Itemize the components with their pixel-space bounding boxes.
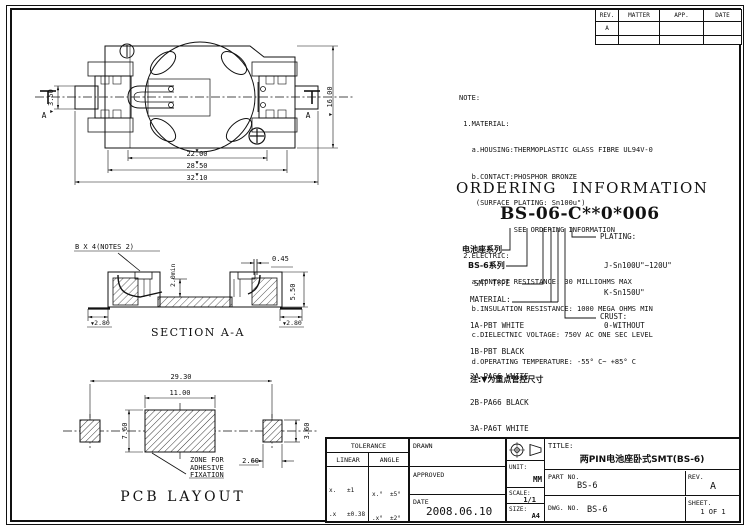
approved-cell: APPROVED xyxy=(410,468,507,495)
note-line: NOTE: xyxy=(459,94,653,103)
material-option: 1A-PBT WHITE xyxy=(470,322,529,330)
adhesive-zone xyxy=(145,410,215,452)
title-cell: TITLE: 两PIN电池座卧式SMT(BS-6) xyxy=(545,439,739,470)
key-mark: ▼ xyxy=(328,113,334,116)
tolerance-table: TOLERANCE LINEAR x. ±1 .x ±0.38 .xx ±0.2… xyxy=(327,439,410,521)
zone-label-line1: ZONE FOR xyxy=(190,456,225,464)
drawn-cell: DRAWN xyxy=(410,439,507,467)
part-no-label: PART NO. xyxy=(548,473,579,481)
rev-header-rev: REV. xyxy=(596,9,619,22)
drawing-title: 两PIN电池座卧式SMT(BS-6) xyxy=(545,452,739,465)
linear-row: x. ±1 xyxy=(329,487,365,495)
linear-row: .x ±0.38 xyxy=(329,511,365,519)
dim-mid-width: 28.50 xyxy=(186,162,207,170)
dwg-no-value: BS-6 xyxy=(587,505,607,515)
ordering-crust-label: CRUST: xyxy=(600,312,627,321)
dim-pad-width: 2.60 xyxy=(242,457,259,465)
rev-cell-empty xyxy=(660,36,704,45)
angle-row: .x° ±2° xyxy=(372,515,408,523)
rev-cell-rev: A xyxy=(596,22,619,36)
date-cell: DATE 2008.06.10 xyxy=(410,496,507,521)
dim-foot-left: 2.80 xyxy=(94,319,110,327)
section-letter-left: A xyxy=(42,111,47,120)
unit-cell: UNIT: MM xyxy=(507,462,545,488)
angle-row: x.° ±5° xyxy=(372,491,408,499)
rev-label: REV. xyxy=(688,473,704,481)
scale-value: 1/1 xyxy=(523,496,536,504)
rev-header-app: APP. xyxy=(660,9,704,22)
scale-cell: SCALE: 1/1 xyxy=(507,489,545,504)
unit-label: UNIT: xyxy=(509,464,527,471)
rev-cell-date xyxy=(704,22,742,36)
material-option: 2B-PA66 BLACK xyxy=(470,399,529,407)
rev-cell-empty xyxy=(596,36,619,45)
angle-header: ANGLE xyxy=(369,453,410,467)
ordering-material-label: MATERIAL: xyxy=(470,295,511,304)
top-view-drawing: A A ▼ 3.50 ▼ 16.00 ▼ 22.00 ▼ 28.50 ▼ 32.… xyxy=(30,25,365,203)
section-caption: SECTION A-A xyxy=(151,326,245,339)
contact-callout: B X 4(NOTES 2) xyxy=(75,243,134,251)
section-view-drawing: B X 4(NOTES 2) 0.45 5.50 2.0min ▼ 2.80 ▼… xyxy=(60,235,345,350)
ordering-plating-options: J-Sn100U"~120U" K-Sn150U" xyxy=(604,244,672,315)
rev-header-date: DATE xyxy=(704,9,742,22)
angle-values: x.° ±5° .x° ±2° .xx° ±1° xyxy=(372,475,408,530)
key-mark: ▼ xyxy=(49,110,55,113)
dwg-row: DWG. NO. BS-6 SHEET. 1 OF 1 xyxy=(545,497,739,521)
dim-body-height: 16.00 xyxy=(326,86,334,107)
title-block: TOLERANCE LINEAR x. ±1 .x ±0.38 .xx ±0.2… xyxy=(325,437,741,523)
dim-section-height: 5.50 xyxy=(289,284,297,301)
linear-values: x. ±1 .x ±0.38 .xx ±0.25 .xxx ±0.10 xyxy=(329,471,365,530)
format-column: UNIT: MM SCALE: 1/1 SIZE: A4 xyxy=(507,439,545,521)
drawn-label: DRAWN xyxy=(413,442,433,450)
slot-top-right xyxy=(217,47,250,79)
sheet-label: SHEET. xyxy=(688,499,711,507)
size-value: A4 xyxy=(532,512,540,520)
rev-cell-app xyxy=(660,22,704,36)
tolerance-angle-col: ANGLE x.° ±5° .x° ±2° .xx° ±1° xyxy=(369,453,410,521)
note-line: 1.MATERIAL: xyxy=(459,120,653,129)
dim-outer-width: 32.10 xyxy=(186,174,207,182)
dim-tab-width: 3.50 xyxy=(47,89,55,106)
part-no-value: BS-6 xyxy=(577,481,597,491)
rev-cell-empty xyxy=(619,36,660,45)
part-row: PART NO. BS-6 REV. A xyxy=(545,471,739,496)
third-angle-projection-icon xyxy=(508,441,544,459)
plus-polarity-icon xyxy=(249,128,265,144)
material-option: 1B-PBT BLACK xyxy=(470,348,529,356)
approved-label: APPROVED xyxy=(413,471,444,479)
solder-pad-left xyxy=(80,420,100,442)
rev-header-matter: MATTER xyxy=(619,9,660,22)
section-cut-marks xyxy=(40,91,320,104)
ordering-plating-label: PLATING: xyxy=(600,232,636,241)
dim-zone-width: 11.00 xyxy=(169,389,190,397)
revision-table: REV. MATTER APP. DATE A xyxy=(595,9,742,45)
dim-pad-height: 3.60 xyxy=(303,423,311,440)
dim-pcb-overall: 29.30 xyxy=(170,373,191,381)
dim-contact-thickness: 0.45 xyxy=(272,255,289,263)
section-geometry xyxy=(88,272,302,309)
control-dimension-note: 注:▼为重点管控尺寸 xyxy=(470,374,543,385)
solder-pad-right xyxy=(263,420,282,442)
drawing-sheet: REV. MATTER APP. DATE A NOTE: 1.MATERIAL… xyxy=(0,0,750,530)
slot-bottom-left xyxy=(146,114,179,146)
minus-polarity-icon xyxy=(120,44,134,58)
rev-cell-empty xyxy=(704,36,742,45)
rev-cell-matter xyxy=(619,22,660,36)
rev-cell-block: REV. A xyxy=(685,471,739,496)
dim-zone-height: 7.60 xyxy=(121,423,129,440)
zone-label-line3: FIXATION xyxy=(190,471,224,479)
note-line: a.HOUSING:THERMOPLASTIC GLASS FIBRE UL94… xyxy=(459,146,653,155)
section-letter-right: A xyxy=(306,111,311,120)
slot-top-left xyxy=(146,47,179,79)
dim-inner-width: 22.00 xyxy=(186,150,207,158)
title-label: TITLE: xyxy=(548,442,573,450)
ordering-smt-label: SMT TYPE xyxy=(474,279,510,288)
size-cell: SIZE: A4 xyxy=(507,505,545,521)
size-label: SIZE: xyxy=(509,506,527,513)
tolerance-linear-col: LINEAR x. ±1 .x ±0.38 .xx ±0.25 .xxx ±0.… xyxy=(327,453,369,521)
ordering-series-label: 电池座系列 xyxy=(462,244,502,255)
pcb-caption: PCB LAYOUT xyxy=(120,489,246,505)
sheet-cell-block: SHEET. 1 OF 1 xyxy=(685,497,739,521)
plating-option: J-Sn100U"~120U" xyxy=(604,262,672,271)
signature-column: DRAWN APPROVED DATE 2008.06.10 xyxy=(410,439,507,521)
unit-value: MM xyxy=(533,475,542,484)
dim-clearance-min: 2.0min xyxy=(169,263,177,287)
ordering-family-label: BS-6系列 xyxy=(468,260,505,271)
dwg-no-label: DWG. NO. xyxy=(548,504,579,512)
material-option: 3A-PA6T WHITE xyxy=(470,425,529,433)
plating-option: K-Sn150U" xyxy=(604,289,672,298)
projection-cell xyxy=(507,439,545,461)
linear-header: LINEAR xyxy=(327,453,369,467)
sheet-value: 1 OF 1 xyxy=(686,508,740,516)
title-column: TITLE: 两PIN电池座卧式SMT(BS-6) PART NO. BS-6 … xyxy=(545,439,739,521)
rev-value: A xyxy=(686,481,740,492)
tolerance-header: TOLERANCE xyxy=(327,439,410,453)
crust-option: 0-WITHOUT xyxy=(604,321,645,330)
dim-foot-right: 2.80 xyxy=(286,319,302,327)
date-value: 2008.06.10 xyxy=(426,505,492,518)
pcb-layout-drawing: 29.30 11.00 7.60 3.60 2.60 ZONE FOR ADHE… xyxy=(55,370,340,510)
